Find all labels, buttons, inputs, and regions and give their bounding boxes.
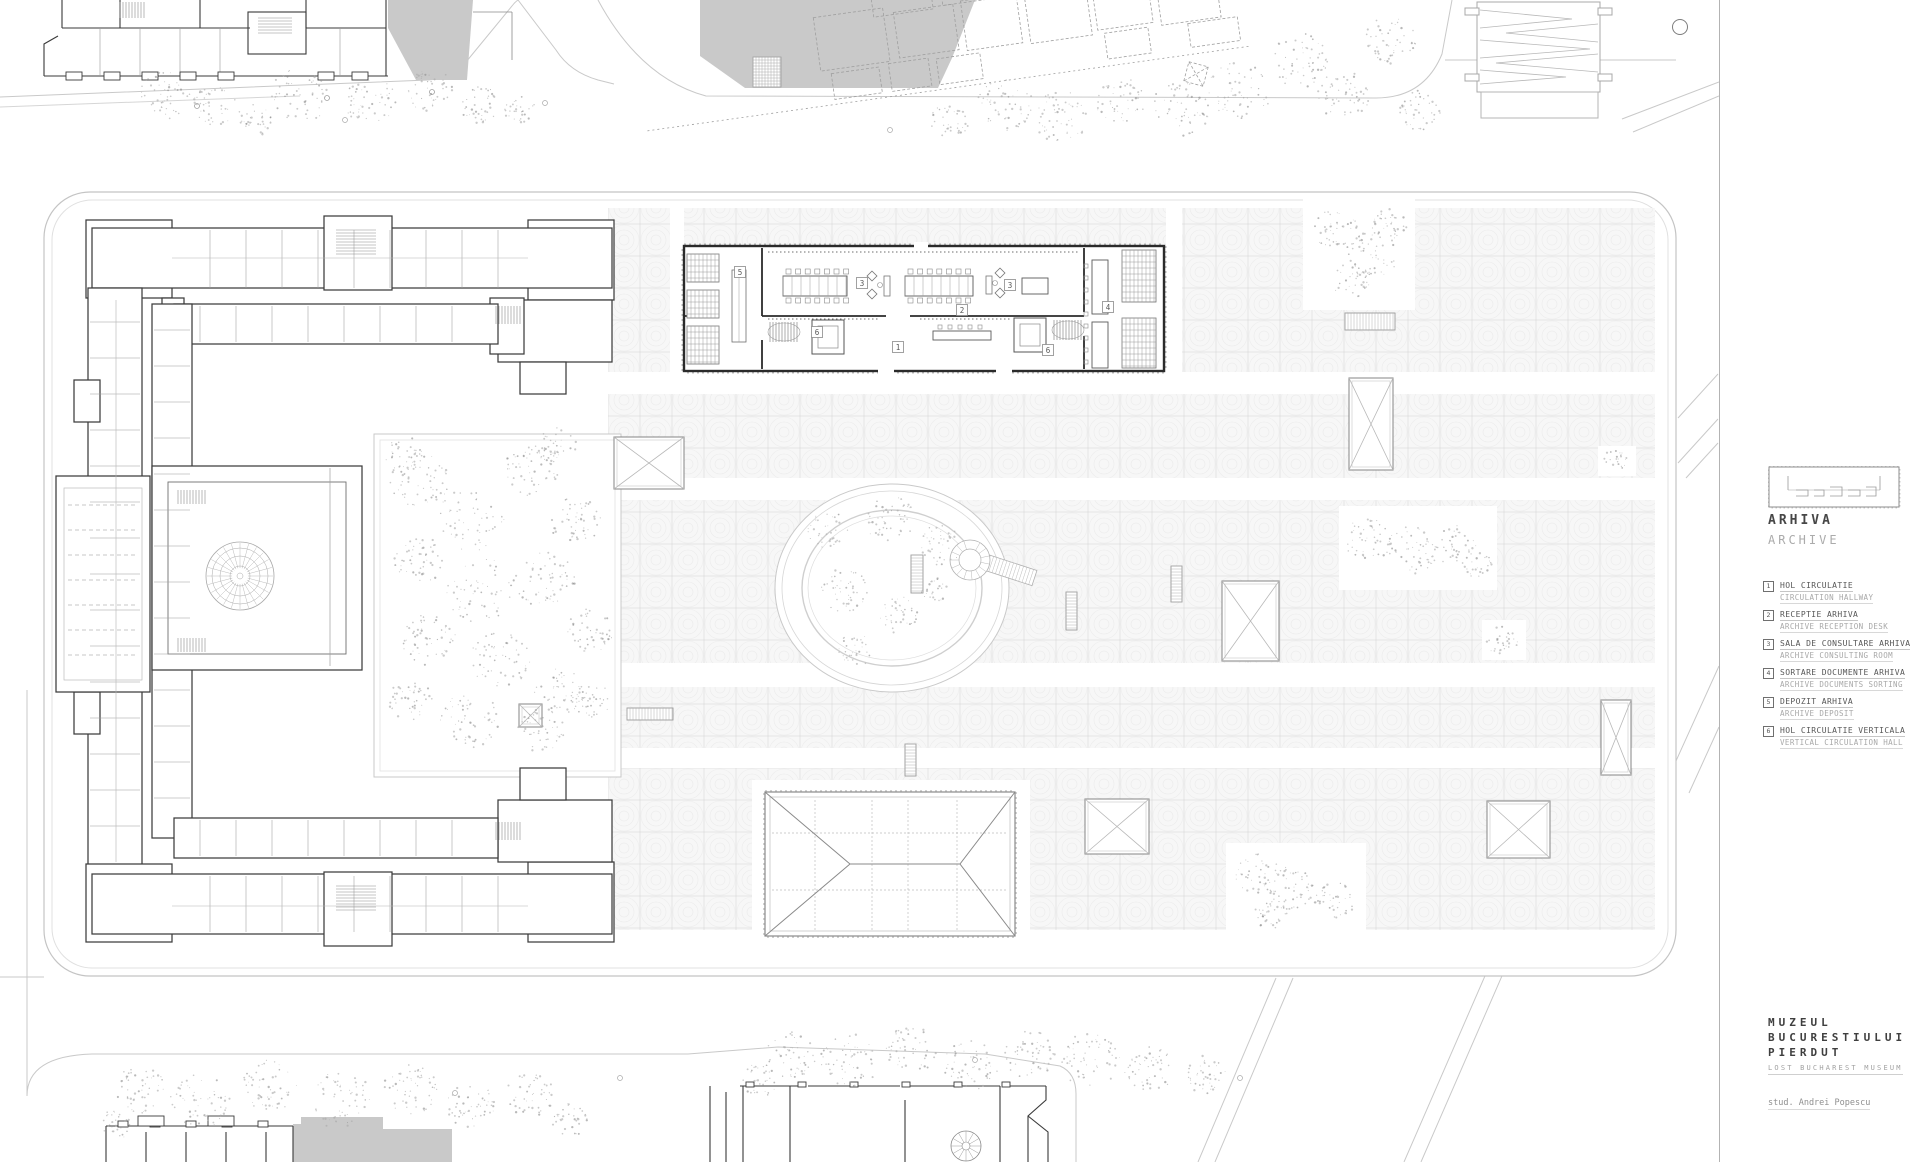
room-label-number: 4 [1106,303,1111,312]
room-label-number: 5 [738,268,743,277]
block-north [630,0,1251,131]
room-label-number: 3 [860,279,865,288]
key-plan [1768,466,1901,510]
project-subtitle: LOST BUCHAREST MUSEUM [1768,1064,1903,1075]
building-mass-gray [388,0,473,80]
museum-block [44,192,1676,976]
archive-building [684,242,1164,375]
legend-item-label-en: ARCHIVE CONSULTING ROOM [1780,651,1893,662]
road-southeast-1 [1198,978,1293,1162]
room-label-number: 6 [815,328,820,337]
legend-item: 2 RECEPTIE ARHIVA ARCHIVE RECEPTION DESK [1763,610,1913,633]
legend-item: 3 SALA DE CONSULTARE ARHIVA ARCHIVE CONS… [1763,639,1913,662]
project-title-block: MUZEUL BUCURESTIULUI PIERDUT LOST BUCHAR… [1768,1015,1906,1075]
legend-item-label-ro: HOL CIRCULATIE VERTICALA [1780,726,1905,737]
building-mass-gray [293,1117,452,1162]
vent-grate [1066,592,1077,630]
legend-item-label-en: ARCHIVE RECEPTION DESK [1780,622,1888,633]
sheet-title-en: ARCHIVE [1768,533,1840,547]
legend-item: 4 SORTARE DOCUMENTE ARHIVA ARCHIVE DOCUM… [1763,668,1913,691]
building-mass-gray [700,0,975,88]
vent-grate [911,555,923,593]
sheet-title-ro: ARHIVA [1768,513,1833,528]
legend-item-label-ro: RECEPTIE ARHIVA [1780,610,1858,621]
legend: 1 HOL CIRCULATIE CIRCULATION HALLWAY 2 R… [1763,581,1913,749]
legend-item-label-ro: HOL CIRCULATIE [1780,581,1853,592]
block-south [710,1082,1048,1162]
legend-item-number: 1 [1763,581,1774,592]
legend-item-label-ro: SALA DE CONSULTARE ARHIVA [1780,639,1910,650]
room-label-number: 3 [1008,281,1013,290]
courtyard-garden [374,434,621,777]
roof-plan-building [752,780,1030,944]
survey-marker-circle [1673,20,1688,35]
project-name-line1: MUZEUL [1768,1015,1906,1030]
legend-item-number: 6 [1763,726,1774,737]
block-southwest [106,1116,452,1162]
legend-item-label-en: ARCHIVE DEPOSIT [1780,709,1854,720]
legend-item-label-ro: SORTARE DOCUMENTE ARHIVA [1780,668,1905,679]
room-label-number: 2 [960,306,965,315]
vent-grate [1345,313,1395,330]
project-name-line3: PIERDUT [1768,1045,1906,1060]
legend-item: 6 HOL CIRCULATIE VERTICALA VERTICAL CIRC… [1763,726,1913,749]
legend-item-label-en: ARCHIVE DOCUMENTS SORTING [1780,680,1903,691]
room-label-number: 6 [1046,346,1051,355]
legend-item-label-ro: DEPOZIT ARHIVA [1780,697,1853,708]
legend-item-number: 3 [1763,639,1774,650]
room-label-number: 1 [896,343,901,352]
inner-courtyard [168,482,346,654]
project-name-line2: BUCURESTIULUI [1768,1030,1906,1045]
legend-item-number: 5 [1763,697,1774,708]
legend-item-number: 2 [1763,610,1774,621]
site-plan-sheet: 53321664 ARHIVA ARCHIVE 1 HOL CIRCULATIE… [0,0,1920,1162]
project-author: stud. Andrei Popescu [1768,1098,1870,1110]
plan-drawing: 53321664 [0,0,1719,1162]
legend-item-label-en: VERTICAL CIRCULATION HALL [1780,738,1903,749]
legend-item: 1 HOL CIRCULATIE CIRCULATION HALLWAY [1763,581,1913,604]
legend-item-number: 4 [1763,668,1774,679]
title-sidebar: ARHIVA ARCHIVE 1 HOL CIRCULATIE CIRCULAT… [1719,0,1920,1162]
legend-item-label-en: CIRCULATION HALLWAY [1780,593,1873,604]
legend-item: 5 DEPOZIT ARHIVA ARCHIVE DEPOSIT [1763,697,1913,720]
